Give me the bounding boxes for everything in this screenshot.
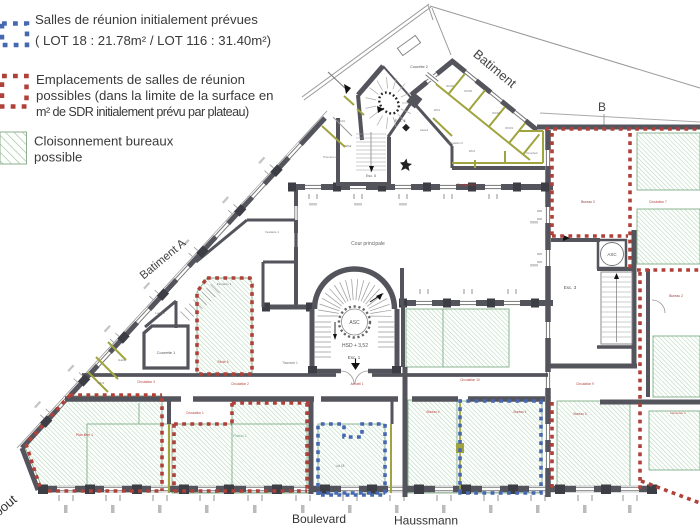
- svg-text:ASC: ASC: [349, 320, 360, 326]
- svg-text:Tisanerie 1: Tisanerie 1: [282, 361, 298, 365]
- svg-text:Plateau 2: Plateau 2: [233, 434, 247, 438]
- svg-text:Bureau 3: Bureau 3: [574, 412, 587, 416]
- svg-text:Douche2: Douche2: [526, 151, 538, 155]
- svg-text:Cour principale: Cour principale: [351, 241, 385, 247]
- svg-text:Gaine: Gaine: [118, 358, 126, 362]
- svg-text:Vestiaire 1: Vestiaire 1: [265, 230, 279, 234]
- svg-text:ASC: ASC: [607, 252, 617, 257]
- svg-text:Bureau 2: Bureau 2: [581, 200, 595, 204]
- svg-text:Haussmann: Haussmann: [394, 514, 458, 526]
- svg-text:Etude 6: Etude 6: [218, 360, 229, 364]
- svg-text:WC08: WC08: [464, 89, 472, 93]
- svg-text:WC2: WC2: [434, 108, 441, 112]
- svg-text:Accueil 1: Accueil 1: [351, 382, 364, 386]
- svg-text:Courette 1: Courette 1: [157, 350, 176, 355]
- svg-text:Gaine2: Gaine2: [420, 128, 429, 132]
- svg-text:Plan libre 1: Plan libre 1: [76, 433, 93, 437]
- svg-text:WC3: WC3: [98, 381, 105, 385]
- svg-text:WC2: WC2: [469, 149, 476, 153]
- svg-text:Circulation 1: Circulation 1: [186, 411, 204, 415]
- svg-text:Circulation 5: Circulation 5: [447, 141, 463, 145]
- svg-text:Boulevard: Boulevard: [292, 512, 346, 525]
- svg-text:Esc. 5: Esc. 5: [366, 174, 376, 178]
- svg-text:Hammam 1: Hammam 1: [670, 411, 686, 415]
- svg-text:WC04: WC04: [492, 111, 500, 115]
- svg-text:Bureau 4: Bureau 4: [427, 410, 440, 414]
- svg-text:WC09: WC09: [446, 84, 454, 88]
- svg-text:Esc. 4: Esc. 4: [394, 118, 406, 123]
- svg-text:Lot 18: Lot 18: [336, 464, 345, 468]
- svg-text:Lustres: Lustres: [155, 311, 165, 315]
- svg-text:WC03: WC03: [505, 126, 513, 130]
- svg-text:Penderie 1: Penderie 1: [217, 282, 232, 286]
- svg-text:Circulation 8: Circulation 8: [457, 183, 476, 187]
- svg-text:m² de SDR initialement prévu p: m² de SDR initialement prévu par plateau…: [36, 105, 249, 119]
- svg-text:( LOT 18 : 21.78m² / LOT 116 :: ( LOT 18 : 21.78m² / LOT 116 : 31.40m²): [35, 33, 271, 48]
- svg-text:Circulation 7: Circulation 7: [649, 200, 667, 204]
- svg-text:HSD + 3,52: HSD + 3,52: [342, 343, 368, 349]
- svg-text:B: B: [598, 100, 606, 114]
- svg-text:Circulation 9: Circulation 9: [576, 382, 594, 386]
- svg-text:Premiere 2: Premiere 2: [323, 155, 337, 159]
- svg-text:Esc. 3: Esc. 3: [564, 285, 577, 290]
- svg-text:Circulation 2: Circulation 2: [231, 382, 249, 386]
- svg-text:Circulation 10: Circulation 10: [460, 378, 480, 382]
- svg-text:Esc. 1: Esc. 1: [348, 355, 361, 360]
- svg-text:possibles (dans la limite de l: possibles (dans la limite de la surface …: [36, 88, 274, 103]
- svg-text:WC04: WC04: [337, 119, 345, 123]
- svg-text:Bureau 1: Bureau 1: [514, 410, 527, 414]
- svg-text:Cloisonnement bureaux: Cloisonnement bureaux: [34, 134, 174, 149]
- svg-text:Courette 2: Courette 2: [410, 65, 428, 69]
- svg-text:Bureau 2: Bureau 2: [669, 294, 683, 298]
- svg-text:possible: possible: [34, 150, 82, 165]
- svg-text:WC2: WC2: [345, 144, 352, 148]
- svg-text:Salles de réunion initialement: Salles de réunion initialement prévues: [35, 12, 258, 27]
- svg-text:Emplacements de salles de réun: Emplacements de salles de réunion: [36, 72, 245, 87]
- svg-text:Circulation 3: Circulation 3: [137, 380, 155, 384]
